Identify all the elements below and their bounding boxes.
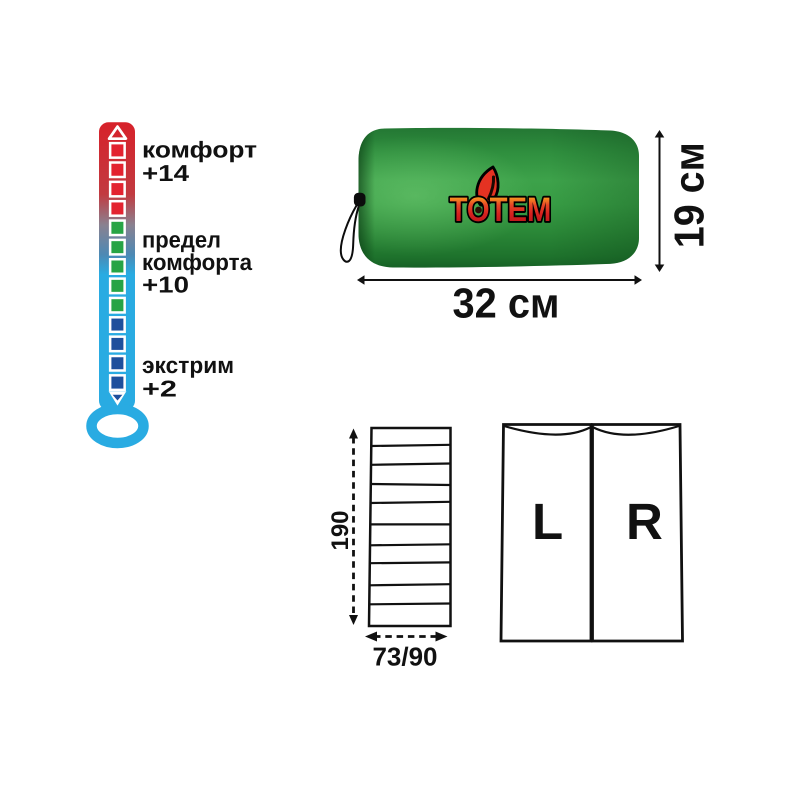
svg-text:TOTEM: TOTEM <box>450 191 552 229</box>
svg-text:комфорт: комфорт <box>142 137 257 163</box>
svg-text:190: 190 <box>327 510 354 550</box>
svg-text:R: R <box>626 493 663 550</box>
svg-text:экстрим: экстрим <box>142 352 234 378</box>
svg-text:+2: +2 <box>142 376 177 402</box>
svg-text:32 см: 32 см <box>453 280 560 327</box>
svg-text:+10: +10 <box>142 272 189 298</box>
svg-text:+14: +14 <box>142 160 189 186</box>
svg-text:L: L <box>532 493 563 550</box>
svg-text:73/90: 73/90 <box>372 642 437 672</box>
svg-text:19 см: 19 см <box>665 142 712 248</box>
